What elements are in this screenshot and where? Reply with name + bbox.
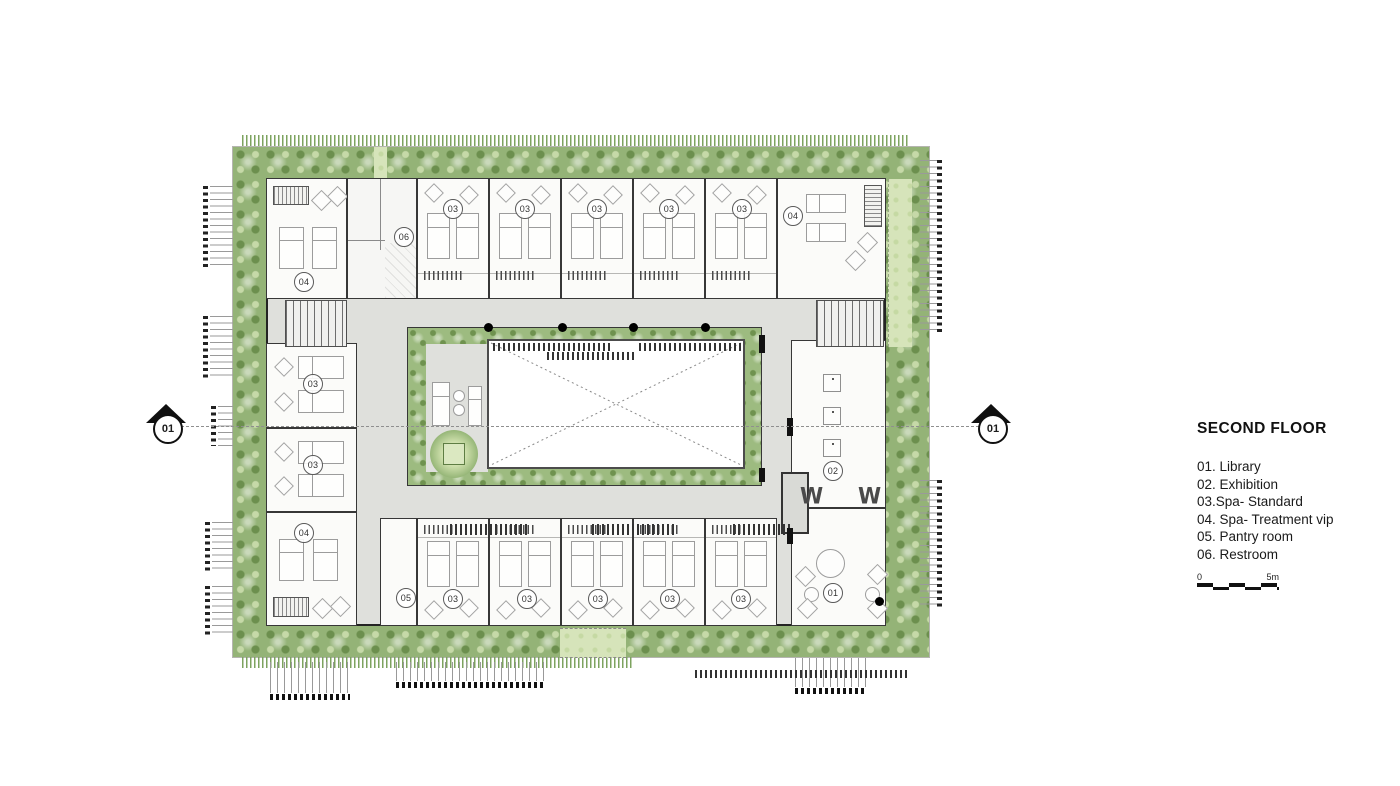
lounge-chairs	[418, 179, 488, 298]
bed	[279, 539, 304, 581]
round-table	[816, 549, 845, 578]
legend-list: 01. Library 02. Exhibition 03.Spa- Stand…	[1197, 458, 1387, 563]
room-label-spa: 03	[443, 589, 463, 609]
scale-bar-graphic	[1197, 583, 1279, 590]
room-label-spa-vip: 04	[294, 272, 314, 292]
room-label-spa: 03	[443, 199, 463, 219]
scale-start: 0	[1197, 572, 1202, 582]
floor-plan-page: W W 04 06 03 03 03 03 03 04 03 03 04 05 …	[0, 0, 1400, 786]
exhibit-pedestal	[823, 374, 841, 392]
trellis-right	[920, 160, 942, 332]
chair	[795, 566, 816, 587]
wall-letter: W	[800, 483, 823, 508]
bed	[806, 223, 846, 242]
courtyard-pool	[487, 339, 745, 469]
boardwalk-edge	[695, 670, 910, 678]
room-label-spa: 03	[517, 589, 537, 609]
door-jamb	[787, 418, 793, 436]
section-marker-right: 01	[968, 404, 1014, 450]
room-label-spa: 03	[303, 455, 323, 475]
stairs-left	[285, 300, 347, 347]
scale-bar: 0 5m	[1197, 572, 1279, 590]
bed	[313, 539, 338, 581]
top-grass-fringe	[242, 135, 908, 146]
legend-item-exhibition: 02. Exhibition	[1197, 476, 1387, 494]
right-lawn	[888, 179, 912, 347]
legend-item-spa-vip: 04. Spa- Treatment vip	[1197, 511, 1387, 529]
stairs-right	[816, 300, 884, 347]
pool-edge-bench	[639, 343, 741, 351]
column	[484, 323, 493, 332]
top-band-path	[374, 147, 387, 178]
door-jamb	[759, 468, 765, 482]
counter	[273, 597, 309, 617]
counter	[273, 186, 309, 205]
section-line	[176, 426, 984, 427]
room-label-library: 01	[823, 583, 843, 603]
room-pantry	[380, 518, 417, 626]
room-label-spa: 03	[731, 589, 751, 609]
room-spa-standard	[489, 178, 561, 299]
counter	[864, 185, 882, 227]
room-label-spa-vip: 04	[783, 206, 803, 226]
exhibit-pedestal	[823, 407, 841, 425]
room-label-spa: 03	[588, 589, 608, 609]
trellis-left	[205, 522, 233, 574]
room-label-pantry: 05	[396, 588, 416, 608]
lounge-chair	[845, 250, 866, 271]
floor-title: SECOND FLOOR	[1197, 420, 1387, 438]
legend-panel: SECOND FLOOR 01. Library 02. Exhibition …	[1197, 420, 1387, 590]
door-jamb	[787, 528, 793, 544]
scale-end: 5m	[1266, 572, 1279, 582]
lounge-chairs	[706, 179, 776, 298]
trellis-left	[205, 586, 233, 638]
pergola-bottom	[270, 662, 350, 700]
trellis-left	[203, 186, 233, 270]
room-label-spa: 03	[659, 199, 679, 219]
room-spa-standard	[417, 178, 489, 299]
bed	[312, 227, 337, 269]
room-label-spa: 03	[515, 199, 535, 219]
chair	[867, 564, 888, 585]
column	[701, 323, 710, 332]
vanity-counter	[733, 524, 791, 535]
room-label-spa-vip: 04	[294, 523, 314, 543]
room-label-exhibition: 02	[823, 461, 843, 481]
column	[629, 323, 638, 332]
section-number: 01	[153, 414, 183, 444]
door-jamb	[759, 335, 765, 353]
lounger	[468, 386, 482, 426]
lounge-chair	[857, 232, 878, 253]
pool-edge-bench	[547, 352, 635, 360]
courtyard-tree	[430, 430, 478, 478]
lounge-chairs	[490, 179, 560, 298]
lounge-chairs	[562, 179, 632, 298]
trellis-right	[920, 480, 942, 608]
pergola-bottom	[396, 662, 544, 688]
room-label-spa: 03	[660, 589, 680, 609]
room-label-spa: 03	[732, 199, 752, 219]
side-table	[453, 390, 465, 402]
legend-item-restroom: 06. Restroom	[1197, 546, 1387, 564]
column	[558, 323, 567, 332]
pool-edge-bench	[493, 343, 611, 351]
room-spa-standard	[561, 178, 633, 299]
tree-planter	[443, 443, 465, 465]
column	[875, 597, 884, 606]
lounge-chair	[312, 598, 333, 619]
lounge-chair	[327, 186, 348, 207]
trellis-left	[203, 316, 233, 378]
room-spa-standard	[633, 178, 705, 299]
wall-letter: W	[858, 483, 881, 508]
bottom-entry-path	[560, 628, 626, 658]
bed	[279, 227, 304, 269]
legend-item-library: 01. Library	[1197, 458, 1387, 476]
room-label-spa: 03	[303, 374, 323, 394]
section-marker-left: 01	[143, 404, 189, 450]
legend-item-pantry: 05. Pantry room	[1197, 528, 1387, 546]
lounge-chairs	[634, 179, 704, 298]
lounge-chair	[330, 596, 351, 617]
section-number: 01	[978, 414, 1008, 444]
room-label-restroom: 06	[394, 227, 414, 247]
vanity-counter	[592, 524, 674, 535]
room-spa-standard	[705, 178, 777, 299]
side-table	[453, 404, 465, 416]
legend-item-spa-standard: 03.Spa- Standard	[1197, 493, 1387, 511]
lounger	[432, 382, 450, 426]
room-spa-vip-topright	[777, 178, 886, 299]
bed	[806, 194, 846, 213]
exhibit-pedestal	[823, 439, 841, 457]
room-label-spa: 03	[587, 199, 607, 219]
vanity-counter	[450, 524, 530, 535]
